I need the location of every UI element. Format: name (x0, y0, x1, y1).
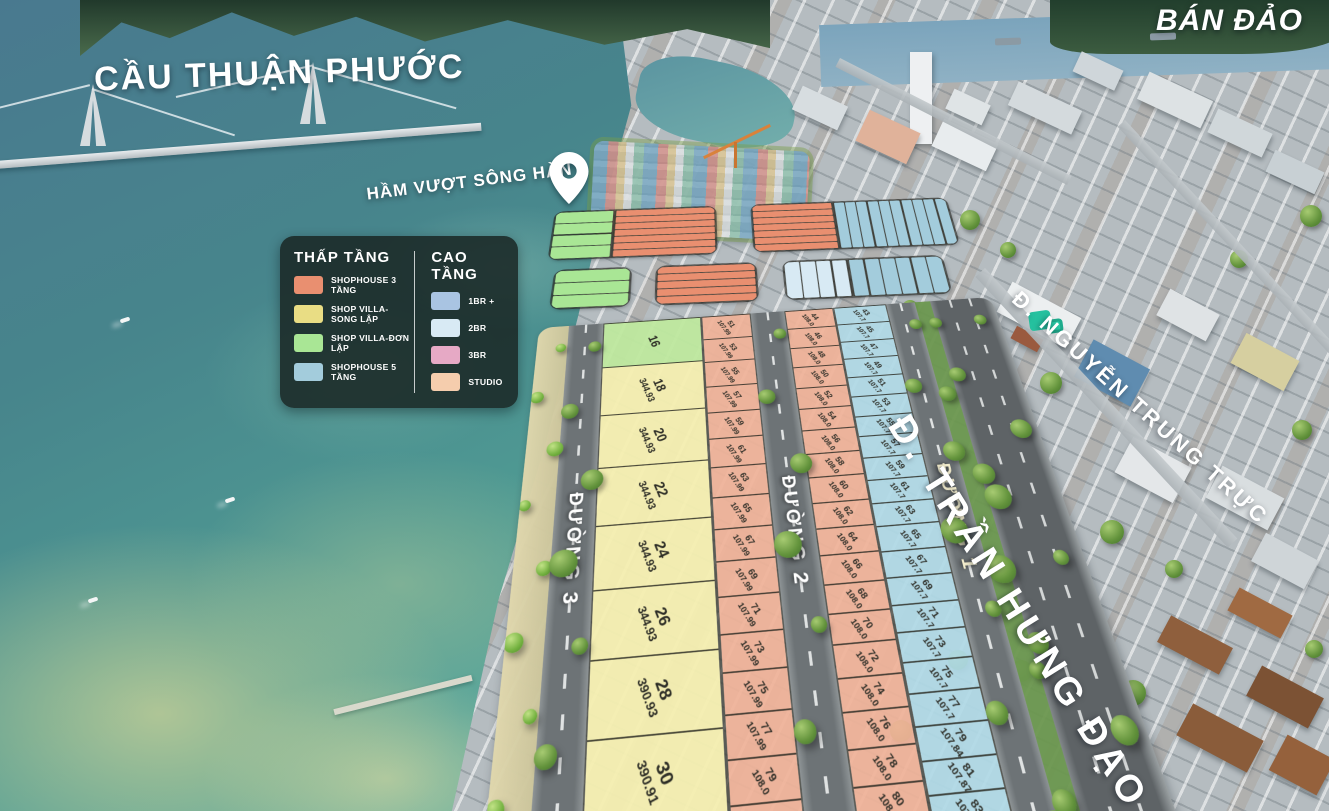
lot-cell: 24344.93 (593, 517, 714, 591)
lot-label: 53107.99 (717, 339, 741, 360)
legend-item-label: SHOP VILLA-ĐƠN LẬP (331, 333, 410, 353)
lot-label: 73107.99 (738, 633, 769, 668)
legend-item: 2BR (431, 319, 504, 337)
lot-label: 79107.84 (938, 720, 973, 760)
lot-label: 76108.0 (863, 711, 894, 745)
plan-block (751, 198, 959, 252)
legend-item-label: STUDIO (468, 377, 502, 387)
lot-label: 81107.87 (945, 754, 981, 796)
legend-item: 1BR + (431, 292, 504, 310)
lot-label: 47107.7 (858, 340, 880, 358)
lot-label: 61107.99 (724, 439, 750, 464)
plan-block (550, 268, 631, 309)
lot-cell: 79108.0 (728, 754, 801, 808)
ship (995, 38, 1021, 46)
lot-label: 65107.7 (897, 524, 924, 550)
lot-label: 46108.0 (802, 329, 824, 347)
lot-cell: 75107.99 (723, 668, 792, 716)
legend-item-label: SHOPHOUSE 3 TẦNG (331, 275, 410, 295)
legend-item: STUDIO (431, 373, 504, 391)
street-tree (1007, 419, 1034, 439)
plan-block (656, 263, 758, 305)
palm-tree (530, 391, 545, 403)
lot-label: 78108.0 (869, 747, 901, 783)
legend-item-label: 1BR + (468, 296, 494, 306)
legend-low-rise-title: THẤP TẦNG (294, 249, 410, 266)
lot-label: 69107.7 (908, 575, 936, 603)
street-tree (757, 388, 776, 404)
lot-label: 57107.99 (720, 387, 745, 410)
lot-label: 64108.0 (834, 527, 861, 553)
street-tree (571, 637, 589, 656)
city-tree (1305, 640, 1323, 658)
tower-crane-mast (734, 142, 737, 168)
lot-cell: 63107.99 (711, 464, 769, 498)
palm-tree (555, 343, 566, 352)
legend-color-chip (431, 292, 460, 310)
palm-tree (502, 632, 524, 654)
lot-label: 62108.0 (830, 501, 856, 526)
lot-label: 22344.93 (636, 473, 672, 511)
legend-color-chip (294, 276, 323, 294)
lot-cell: 51107.99 (702, 314, 752, 340)
aerial-masterplan-map: ĐƯỜNG 31618344.9320344.9322344.9324344.9… (0, 0, 1329, 811)
lot-label: 51107.7 (865, 376, 888, 396)
lot-label: 73107.7 (920, 630, 949, 660)
lot-label: 52108.0 (812, 387, 835, 407)
legend-high-rise-items: 1BR +2BR3BRSTUDIO (431, 292, 504, 400)
lot-label: 16 (644, 335, 662, 350)
lot-label: 69107.99 (733, 562, 762, 593)
lot-cell: 69107.99 (716, 558, 779, 598)
lot-cell: 57107.99 (706, 384, 759, 413)
street-tree (810, 615, 828, 633)
lot-cell: 28390.93 (587, 651, 723, 743)
bridge-deck (0, 123, 482, 169)
city-tree (1100, 520, 1124, 544)
legend-item-label: SHOP VILLA-SONG LẬP (331, 304, 410, 324)
location-pin-icon (549, 152, 589, 204)
palm-tree (521, 708, 537, 725)
lot-label: 72108.0 (853, 644, 882, 675)
legend-item: SHOP VILLA-SONG LẬP (294, 304, 410, 324)
lot-label: 26344.93 (634, 597, 674, 643)
legend-color-chip (431, 319, 460, 337)
lot-cell: 71107.99 (718, 593, 783, 635)
legend-low-rise-items: SHOPHOUSE 3 TẦNGSHOP VILLA-SONG LẬPSHOP … (294, 275, 410, 391)
lot-label: 75107.99 (741, 673, 773, 710)
lot-label: 71107.99 (735, 596, 765, 629)
city-tree (1300, 205, 1322, 227)
plan-block-section (751, 202, 839, 252)
lot-label: 74108.0 (858, 677, 888, 710)
plan-block-unit (552, 293, 628, 308)
palm-tree (518, 500, 531, 512)
legend-item: 3BR (431, 346, 504, 364)
lot-cell: 20344.93 (598, 408, 707, 468)
lot-cell: 73107.99 (721, 629, 788, 674)
lot-label: 55107.99 (719, 362, 743, 384)
lot-label: 24344.93 (635, 532, 673, 574)
street-tree (560, 403, 579, 419)
lot-cell: 30390.91 (583, 730, 727, 811)
legend-divider (414, 251, 415, 393)
lot-label: 50108.0 (808, 367, 831, 386)
lot-label: 51107.99 (715, 317, 738, 337)
lot-cell: 22344.93 (596, 460, 711, 527)
plan-block-unit (550, 245, 610, 258)
street-tree (533, 743, 558, 771)
lot-cell: 26344.93 (590, 580, 718, 662)
street-tree (792, 718, 817, 745)
legend-item: SHOPHOUSE 3 TẦNG (294, 275, 410, 295)
bridge-cable (0, 84, 90, 120)
lot-label: 79108.0 (748, 761, 779, 798)
lot-label: 63107.99 (726, 467, 753, 493)
lot-label: 63107.7 (892, 501, 918, 526)
lot-label: 28390.93 (634, 669, 677, 721)
lot-cell: 65107.99 (713, 494, 772, 530)
lot-label: 68108.0 (843, 583, 871, 611)
legend-color-chip (294, 305, 323, 323)
lot-label: 18344.93 (636, 372, 669, 403)
lot-label: 59107.99 (722, 412, 748, 436)
lot-label: 60108.0 (826, 477, 851, 501)
street-tree (1050, 549, 1070, 565)
lot-label: 80108.0 (875, 785, 908, 811)
legend-item-label: 2BR (468, 323, 486, 333)
lot-label: 49107.7 (862, 357, 885, 376)
lot-cell: 59107.99 (708, 410, 763, 441)
plan-block (783, 256, 952, 300)
lot-label: 71107.7 (914, 602, 943, 631)
legend-color-chip (431, 373, 460, 391)
lot-label: 45107.7 (854, 323, 876, 341)
legend-item: SHOP VILLA-ĐƠN LẬP (294, 333, 410, 353)
plan-block-section (832, 198, 959, 249)
palm-tree (484, 799, 505, 811)
lot-label: 77107.7 (933, 690, 964, 723)
lot-label: 30390.91 (633, 750, 678, 809)
lot-label: 43107.7 (851, 306, 873, 323)
legend-item: SHOPHOUSE 5 TẦNG (294, 362, 410, 382)
plan-block-unit (554, 222, 613, 235)
street-tree (588, 341, 601, 352)
lot-label: 58108.0 (822, 453, 847, 476)
city-tree (1292, 420, 1312, 440)
peninsula-label: BÁN ĐẢO (1156, 4, 1303, 38)
lot-cell: 18344.93 (601, 361, 705, 416)
high-rise-blocks (538, 198, 986, 312)
plan-block-section (847, 256, 951, 297)
lot-label: 44108.0 (799, 310, 821, 327)
lot-label: 66108.0 (838, 554, 865, 581)
lot-label: 75107.7 (926, 660, 956, 692)
lot-label: 56108.0 (818, 430, 842, 452)
plan-block-section (550, 268, 631, 309)
lot-label: 54108.0 (815, 408, 839, 429)
lot-label: 53107.7 (869, 395, 893, 415)
legend-panel: THẤP TẦNG SHOPHOUSE 3 TẦNGSHOP VILLA-SON… (280, 236, 518, 408)
plan-block-section (783, 259, 854, 299)
city-tree (1040, 372, 1062, 394)
plan-block-section (549, 210, 615, 260)
lot-label: 67107.7 (902, 549, 929, 576)
lot-cell: 77107.99 (725, 710, 796, 761)
lot-label: 77107.99 (744, 714, 777, 753)
lot-cell: 61107.99 (709, 436, 765, 468)
legend-item-label: 3BR (468, 350, 486, 360)
lot-label: 65107.99 (728, 497, 756, 525)
lot-label: 48108.0 (805, 347, 827, 365)
lot-cell: 67107.99 (715, 525, 776, 563)
lot-label: 67107.99 (730, 528, 758, 557)
plan-block-section (611, 206, 717, 257)
city-tree (1165, 560, 1183, 578)
plan-block-section (656, 263, 758, 305)
lot-label: 70108.0 (848, 613, 877, 643)
city-tree (1000, 242, 1016, 258)
legend-color-chip (294, 334, 323, 352)
lot-cell: 16 (603, 317, 703, 368)
legend-high-rise-title: CAO TẦNG (431, 249, 504, 283)
legend-item-label: SHOPHOUSE 5 TẦNG (331, 362, 410, 382)
street-tree (773, 328, 787, 339)
lot-number: 16 (644, 335, 662, 350)
plan-block-unit (552, 234, 611, 247)
legend-color-chip (431, 346, 460, 364)
legend-color-chip (294, 363, 323, 381)
street-tree (972, 314, 988, 325)
plan-block (549, 206, 717, 259)
lot-label: 20344.93 (636, 420, 671, 454)
